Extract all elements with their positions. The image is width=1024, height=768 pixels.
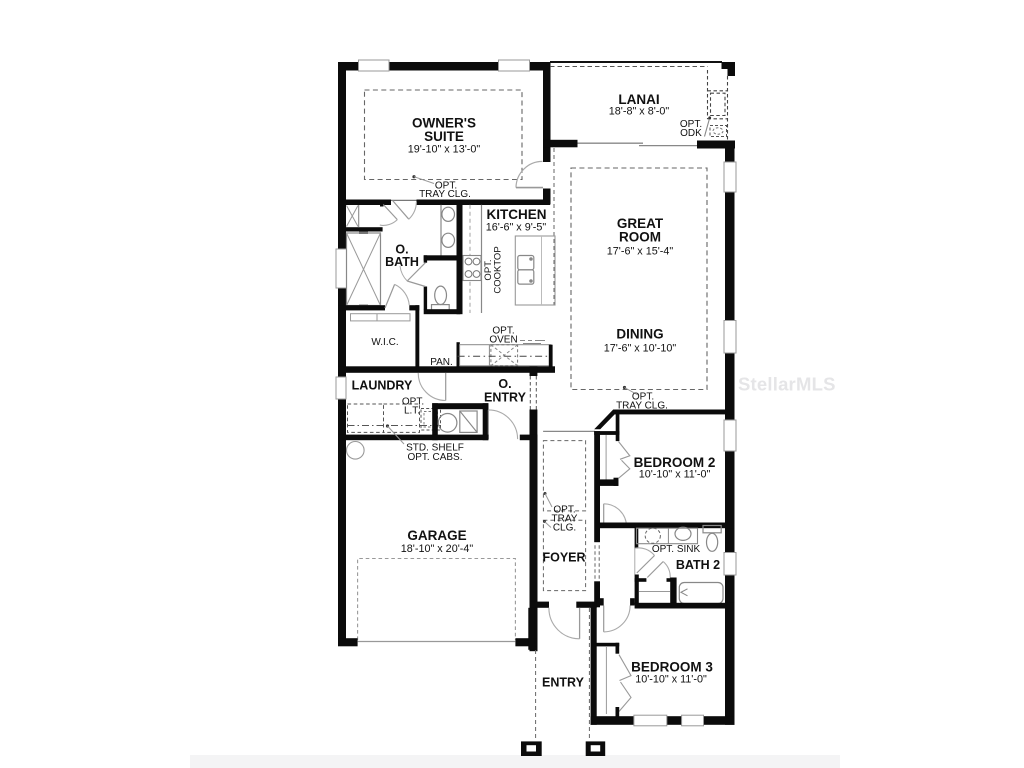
svg-text:BATH: BATH xyxy=(385,255,419,269)
svg-text:18'-10" x 20'-4": 18'-10" x 20'-4" xyxy=(401,543,474,555)
svg-text:StellarMLS: StellarMLS xyxy=(738,374,836,395)
svg-text:BATH 2: BATH 2 xyxy=(676,558,720,572)
svg-text:COOKTOP: COOKTOP xyxy=(493,246,504,293)
svg-text:19'-10" x 13'-0": 19'-10" x 13'-0" xyxy=(408,144,481,156)
svg-text:FOYER: FOYER xyxy=(542,551,585,565)
svg-text:17'-6" x 10'-10": 17'-6" x 10'-10" xyxy=(604,343,677,355)
svg-text:OVEN: OVEN xyxy=(489,335,517,346)
svg-text:17'-6" x 15'-4": 17'-6" x 15'-4" xyxy=(607,246,674,258)
svg-text:BEDROOM 3: BEDROOM 3 xyxy=(631,660,713,675)
svg-text:16'-6" x 9'-5": 16'-6" x 9'-5" xyxy=(486,222,547,234)
svg-text:LAUNDRY: LAUNDRY xyxy=(352,379,413,393)
svg-text:ENTRY: ENTRY xyxy=(542,676,585,690)
svg-text:10'-10" x 11'-0": 10'-10" x 11'-0" xyxy=(639,469,711,481)
svg-text:GARAGE: GARAGE xyxy=(407,528,466,543)
svg-text:OPT. CABS.: OPT. CABS. xyxy=(407,452,462,463)
svg-text:L.T.: L.T. xyxy=(404,406,420,417)
svg-text:O.: O. xyxy=(498,377,511,391)
svg-text:ODK: ODK xyxy=(680,128,702,139)
svg-text:CLG.: CLG. xyxy=(553,523,576,534)
svg-text:ROOM: ROOM xyxy=(619,230,661,245)
svg-text:SUITE: SUITE xyxy=(424,129,464,144)
svg-text:W.I.C.: W.I.C. xyxy=(371,337,398,348)
svg-text:18'-8" x 8'-0": 18'-8" x 8'-0" xyxy=(609,106,670,118)
svg-text:DINING: DINING xyxy=(616,327,663,342)
svg-text:ENTRY: ENTRY xyxy=(484,391,527,405)
svg-text:KITCHEN: KITCHEN xyxy=(487,207,547,222)
svg-text:10'-10" x 11'-0": 10'-10" x 11'-0" xyxy=(635,674,707,686)
svg-text:OPT. SINK: OPT. SINK xyxy=(652,544,701,555)
svg-text:TRAY CLG.: TRAY CLG. xyxy=(419,189,471,200)
